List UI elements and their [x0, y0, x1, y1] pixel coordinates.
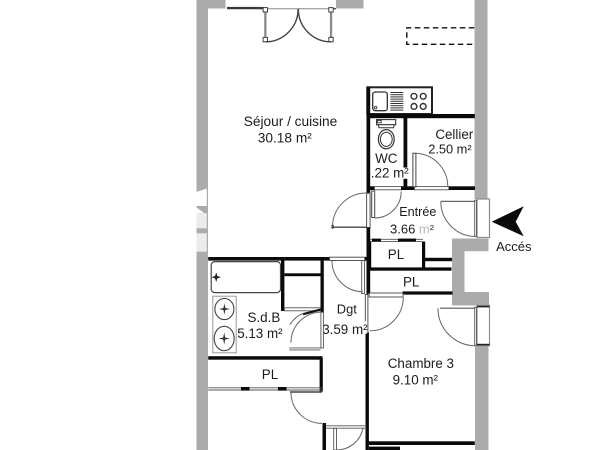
svg-text:PL: PL: [262, 367, 278, 382]
svg-text:Séjour / cuisine: Séjour / cuisine: [244, 114, 338, 129]
svg-text:2.50 m²: 2.50 m²: [428, 141, 472, 156]
svg-text:PL: PL: [403, 275, 419, 290]
svg-text:WC: WC: [375, 151, 398, 166]
svg-text:Chambre 3: Chambre 3: [388, 356, 454, 371]
svg-text:5.13 m²: 5.13 m²: [237, 326, 283, 341]
svg-text:9.10 m²: 9.10 m²: [393, 373, 439, 388]
svg-text:3.66 m²: 3.66 m²: [390, 222, 435, 237]
svg-text:Dgt: Dgt: [337, 302, 357, 317]
svg-text:Entrée: Entrée: [399, 205, 436, 219]
svg-text:Accés: Accés: [496, 239, 532, 254]
svg-text:PL: PL: [388, 247, 404, 262]
svg-text:S.d.B: S.d.B: [248, 310, 281, 325]
svg-text:Cellier: Cellier: [435, 127, 473, 142]
svg-text:30.18 m²: 30.18 m²: [258, 130, 312, 145]
svg-text:3.59 m²: 3.59 m²: [322, 322, 368, 337]
svg-text:.22 m²: .22 m²: [371, 166, 409, 181]
